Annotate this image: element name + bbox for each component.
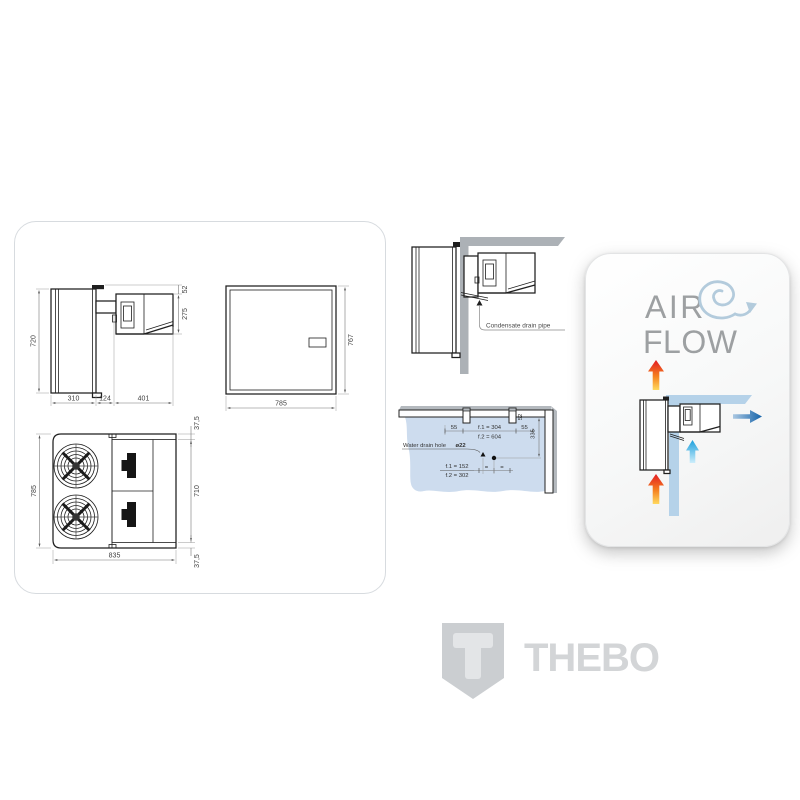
dim-label: f.2 = 302 xyxy=(445,473,468,479)
dim-label: 37,5 xyxy=(194,554,201,568)
dim-label: 275 xyxy=(182,308,189,320)
air-out-arrow-icon xyxy=(733,410,762,423)
dim-label: 52 xyxy=(182,286,189,294)
ceiling xyxy=(460,237,565,246)
drain-hole xyxy=(492,456,496,460)
fan-icon xyxy=(54,495,98,539)
wall-section-diagram: Condensate drain pipe xyxy=(398,226,578,388)
plan-view-drawing: 785 37,5 710 37,5 835 xyxy=(31,416,201,568)
dim-label: 55 xyxy=(451,425,458,431)
dim-label: f.2 = 604 xyxy=(478,435,502,441)
brand-shield-icon xyxy=(441,622,505,701)
mounting-bracket xyxy=(92,285,104,289)
water-drain-label: Water drain hole xyxy=(403,443,447,449)
monoblock-unit-section xyxy=(640,397,720,474)
dimension-panel: 720 52 275 310 124 401 xyxy=(14,221,386,594)
dim-label: 767 xyxy=(348,334,355,346)
side-wall xyxy=(545,410,553,493)
airflow-panel: AIR FLOW xyxy=(585,253,790,547)
floor-plan-diagram: 55 f.1 = 304 55 f.2 = 604 52 335 Water d… xyxy=(393,390,561,512)
dim-label: 310 xyxy=(68,396,80,403)
brand-name: THEBO xyxy=(524,636,659,681)
water-drain-diameter: ø22 xyxy=(456,443,467,449)
dim-label: 124 xyxy=(99,396,111,403)
ceiling xyxy=(666,395,752,404)
dim-label: 785 xyxy=(31,485,38,497)
front-view-drawing: 767 785 xyxy=(226,286,355,411)
dim-label: 37,5 xyxy=(194,416,201,430)
dim-label: f.1 = 304 xyxy=(478,425,502,431)
dim-label: 335 xyxy=(531,428,537,439)
airflow-title-line1: AIR xyxy=(645,289,706,325)
dim-label: f.1 = 152 xyxy=(445,464,468,470)
equal-mark: = xyxy=(500,465,504,471)
dim-label: 835 xyxy=(109,553,121,560)
dim-label: 720 xyxy=(31,335,38,347)
dim-label: 52 xyxy=(518,414,524,421)
leader-arrow-icon xyxy=(477,300,483,306)
condensate-label: Condensate drain pipe xyxy=(486,323,551,330)
dim-label: 55 xyxy=(521,425,528,431)
side-view-drawing: 720 52 275 310 124 401 xyxy=(31,285,190,406)
airflow-title-line2: FLOW xyxy=(643,324,738,360)
monoblock-unit-section xyxy=(412,242,535,358)
cold-air-arrow-icon xyxy=(686,440,699,463)
spiral-airflow-icon xyxy=(700,282,757,318)
fan-icon xyxy=(54,444,98,488)
dimension-drawings: 720 52 275 310 124 401 xyxy=(15,222,385,593)
dim-label: 710 xyxy=(194,485,201,497)
dim-label: 785 xyxy=(275,401,287,408)
hot-air-arrow-icon xyxy=(648,474,664,504)
dim-label: 401 xyxy=(138,396,150,403)
equal-mark: = xyxy=(485,465,489,471)
hot-air-arrow-icon xyxy=(648,360,664,390)
wall-top-edge xyxy=(399,406,551,410)
technical-drawing-page: 720 52 275 310 124 401 xyxy=(0,0,800,800)
